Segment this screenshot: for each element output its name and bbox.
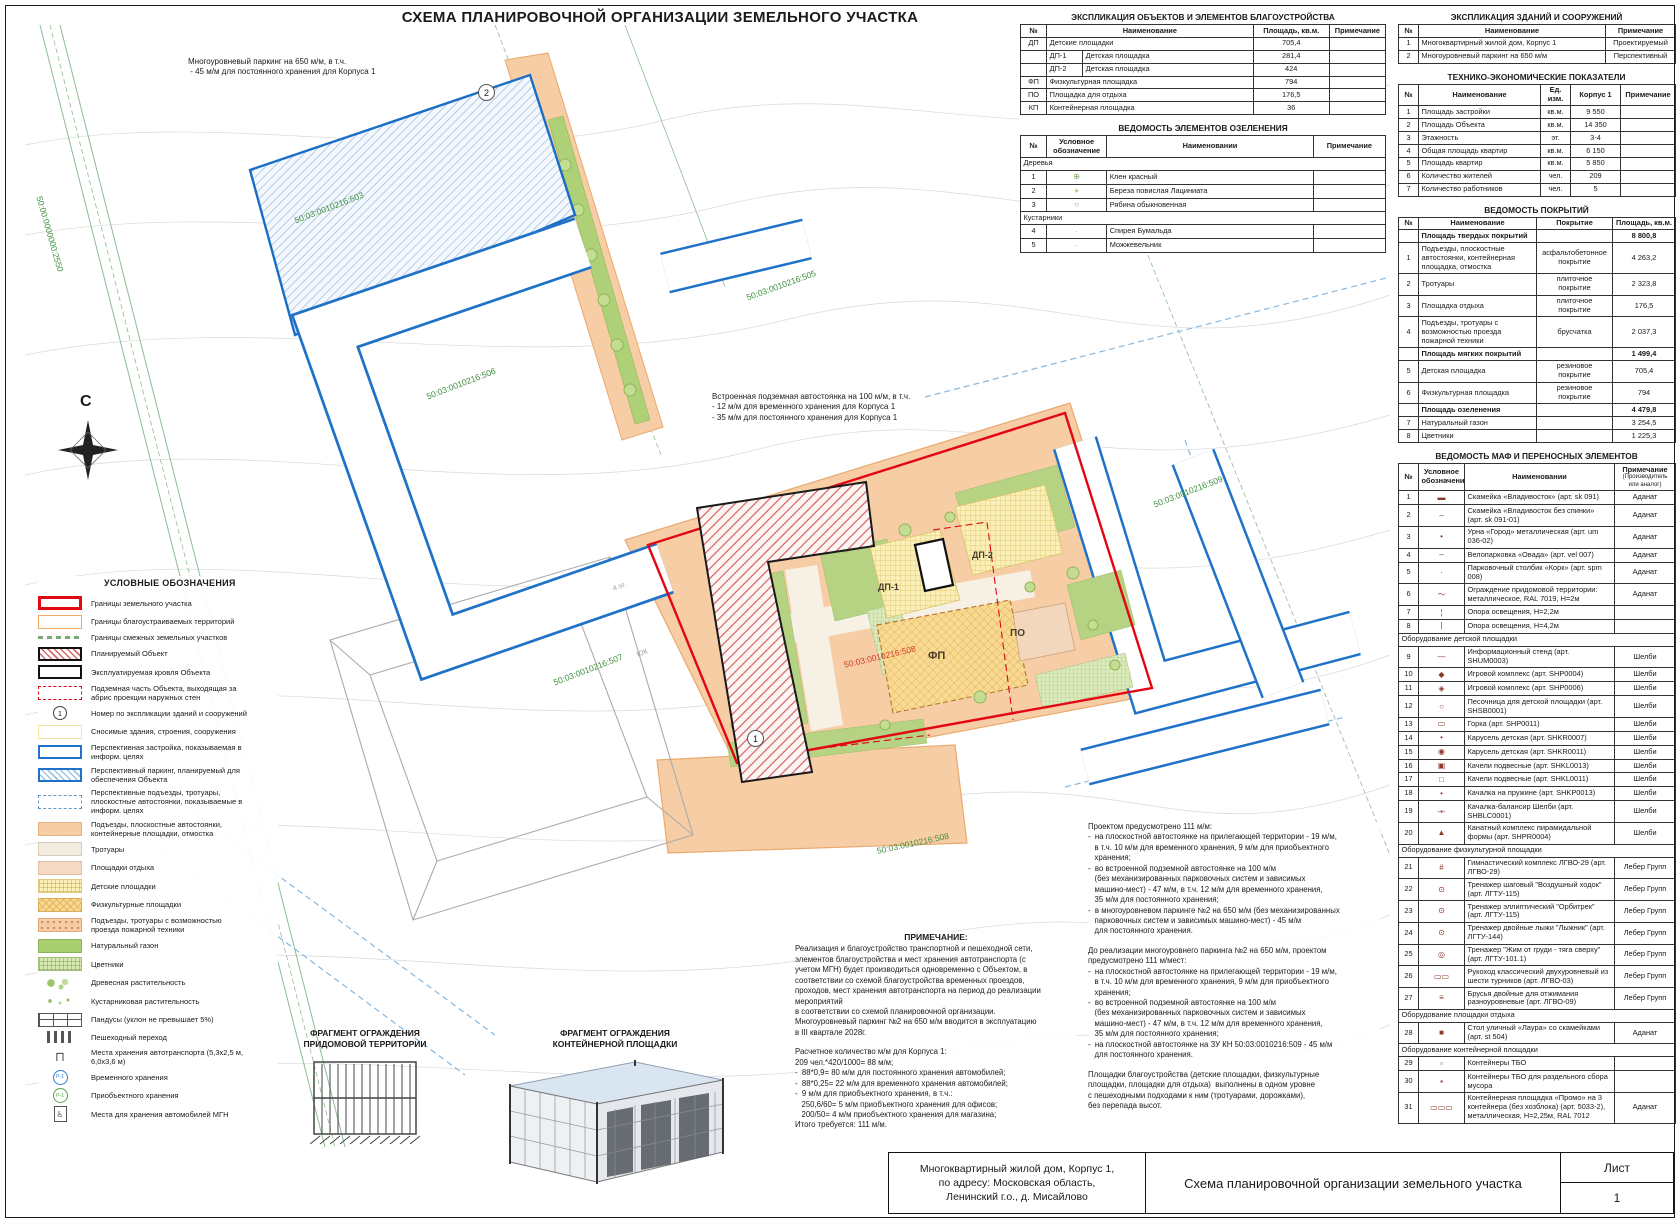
rope-pyramid-icon: ▲ [1438, 828, 1446, 837]
legend-item: 1Номер по экспликации зданий и сооружени… [38, 706, 278, 720]
text-line: Многоуровневый паркинг №2 на 650 м/м вво… [795, 1017, 1077, 1027]
table-row: ПОПлощадка для отдыха176,5 [1021, 89, 1386, 102]
legend-item: Границы земельного участка [38, 596, 278, 610]
legend-item: Пандусы (уклон не превышает 5%) [38, 1013, 278, 1027]
temporary-storage-swatch: Р-1 [38, 1070, 82, 1084]
legend-label: Древесная растительность [91, 978, 251, 987]
text-line: - 88*0,9= 80 м/м для постоянного хранени… [795, 1068, 1077, 1078]
compass-star [58, 420, 118, 480]
table-row: 18•Качалка на пружине (арт. SHKP0013)Шел… [1399, 787, 1676, 801]
press-trainer-icon: ◎ [1438, 950, 1445, 959]
table-row: 2Площадь Объектакв.м.14 350 [1399, 119, 1676, 132]
table-row: 8|Опора освещения, H=4,2м [1399, 619, 1676, 633]
info-stand-icon: — [1438, 652, 1446, 661]
slide-icon: ▭ [1438, 719, 1446, 728]
text-line: (без механизированных парковочных систем… [1088, 1008, 1380, 1018]
legend-item: Цветники [38, 957, 278, 971]
container-fence-caption: ФРАГМЕНТ ОГРАЖДЕНИЯКОНТЕЙНЕРНОЙ ПЛОЩАДКИ [500, 1028, 730, 1051]
legend-item: ♿Места для хранения автомобилей МГН [38, 1107, 278, 1121]
legend-label: Сносимые здания, строения, сооружения [91, 727, 251, 736]
drawing-sheet: СХЕМА ПЛАНИРОВОЧНОЙ ОРГАНИЗАЦИИ ЗЕМЕЛЬНО… [0, 0, 1680, 1223]
table-row: Оборудование детской площадки [1399, 633, 1676, 646]
legend-label: Площадки отдыха [91, 863, 251, 872]
legend-label: Цветники [91, 960, 251, 969]
table-header-row: №НаименованиеПримечание [1399, 25, 1676, 38]
birch-symbol: ● [1074, 186, 1079, 195]
table-row: 5·Можжевельник [1021, 239, 1386, 253]
text-line: - на плоскостной автостоянке на ЗУ КН 50… [1088, 1040, 1380, 1050]
table-header-row: №НаименованиеПлощадь, кв.м.Примечание [1021, 25, 1386, 38]
demolished-buildings-swatch [38, 725, 82, 739]
text-line: в соответствии со схемой планировочной о… [795, 1007, 1077, 1017]
spirea-symbol: · [1075, 227, 1078, 236]
legend-item: Перспективный паркинг, планируемый для о… [38, 766, 278, 784]
container-enclosure-drawing [495, 1056, 730, 1191]
rest-areas-swatch [38, 861, 82, 875]
text-line: 200/50= 4 м/м приобъектного хранения для… [795, 1110, 1077, 1120]
surfaces-table-title: ВЕДОМОСТЬ ПОКРЫТИЙ [1398, 205, 1675, 215]
legend-label: Подъезды, тротуары с возможностью проезд… [91, 916, 251, 934]
legend-item: Перспективная застройка, показываемая в … [38, 743, 278, 761]
table-row: 1Площадь застройкикв.м.9 550 [1399, 106, 1676, 119]
building-1-mark: 1 [747, 730, 764, 747]
notes-paragraph: Реализация и благоустройство транспортно… [795, 944, 1077, 1038]
table-row: 9—Информационный стенд (арт. SHUM0003)Ше… [1399, 646, 1676, 668]
table-row: 3Этажностьэт.3-4 [1399, 132, 1676, 145]
legend-item: Р-1Временного хранения [38, 1070, 278, 1084]
table-row: 6〜Ограждение придомовой территории: мета… [1399, 584, 1676, 606]
text-line: проходов, мест хранения автотранспорта н… [795, 986, 1077, 996]
table-row: 17□Качели подвесные (арт. SHKL0011)Шелби [1399, 773, 1676, 787]
fence-fragment-caption: ФРАГМЕНТ ОГРАЖДЕНИЯПРИДОМОВОЙ ТЕРРИТОРИИ [270, 1028, 460, 1051]
table-row: КПКонтейнерная площадка36 [1021, 102, 1386, 115]
table-row: 21#Гимнастический комплекс ЛГВО-29 (арт.… [1399, 857, 1676, 879]
notes-left: ПРИМЕЧАНИЕ: Реализация и благоустройство… [795, 932, 1077, 1131]
tep-table-title: ТЕХНИКО-ЭКОНОМИЧЕСКИЕ ПОКАЗАТЕЛИ [1398, 72, 1675, 82]
table-row: 3•Урна «Город» металлическая (арт. um 03… [1399, 526, 1676, 548]
sidewalks-swatch [38, 842, 82, 856]
table-row: 30▪Контейнеры ТБО для раздельного сбора … [1399, 1071, 1676, 1093]
monkey-bars-icon: ▭▭ [1434, 972, 1449, 981]
exploited-roof-swatch [38, 665, 82, 679]
table-row: 1⊕Клен красный [1021, 170, 1386, 184]
gym-complex-icon: # [1439, 863, 1443, 872]
text-line: площадки, площадки для отдыха) выполнены… [1088, 1080, 1380, 1090]
text-line: - 35 м/м для постоянного хранения для Ко… [712, 413, 910, 423]
table-row: 12○Песочница для детской площадки (арт. … [1399, 696, 1676, 718]
legend-label: Перспективный паркинг, планируемый для о… [91, 766, 251, 784]
table-row: 27≡Брусья двойные для отжимания разноуро… [1399, 988, 1676, 1010]
table-row: Оборудование контейнерной площадки [1399, 1044, 1676, 1057]
text-line: - 45 м/м для постоянного хранения для Ко… [188, 67, 375, 77]
maple-symbol: ⊕ [1073, 172, 1080, 181]
table-row: Площадь твердых покрытий8 800,8 [1399, 230, 1676, 243]
provided-parking-note: Проектом предусмотрено 111 м/м:- на плос… [1088, 822, 1380, 937]
table-row: 5Детская площадкарезиновое покрытие705,4 [1399, 360, 1676, 382]
table-row: 1Многоквартирный жилой дом, Корпус 1Прое… [1399, 37, 1676, 50]
perspective-buildings-swatch [38, 745, 82, 759]
playground-1-label: ДП-1 [878, 582, 899, 592]
objects-table: №НаименованиеПлощадь, кв.м.ПримечаниеДПД… [1020, 24, 1386, 115]
spring-rocker-icon: • [1440, 789, 1443, 798]
table-row: 7Натуральный газон3 254,5 [1399, 417, 1676, 430]
text-line: 35 м/м для постоянного хранения; [1088, 1029, 1380, 1039]
legend-label: Подземная часть Объекта, выходящая за аб… [91, 684, 251, 702]
legend-label: Тротуары [91, 845, 251, 854]
light-pole-icon: ¦ [1440, 608, 1442, 617]
text-line: с пешеходными подходами к ним (тротуарам… [1088, 1091, 1380, 1101]
text-line: 209 чел.*420/1000= 88 м/м; [795, 1058, 1077, 1068]
perspective-building-2 [665, 239, 807, 273]
interim-parking-note: До реализации многоуровнего паркинга №2 … [1088, 946, 1380, 1061]
text-line: ФРАГМЕНТ ОГРАЖДЕНИЯ [270, 1028, 460, 1039]
legend-label: Границы смежных земельных участков [91, 633, 251, 642]
legend-label: Места для хранения автомобилей МГН [91, 1110, 251, 1119]
maf-table: №Условное обозначениеНаименованииПримеча… [1398, 463, 1676, 1124]
near-object-storage-swatch: Р-1 [38, 1089, 82, 1103]
text-line: КОНТЕЙНЕРНОЙ ПЛОЩАДКИ [500, 1039, 730, 1050]
table-row: 11◈Игровой комплекс (арт. SHP0006)Шелби [1399, 682, 1676, 696]
building-2-mark: 2 [478, 84, 495, 101]
text-line: учетом МГН) будет производиться одноврем… [795, 965, 1077, 975]
text-line: в т.ч. 10 м/м для временного хранения, 9… [1088, 977, 1380, 987]
table-row: 2–Скамейка «Владивосток без спинки» (арт… [1399, 505, 1676, 527]
maf-table-title: ВЕДОМОСТЬ МАФ И ПЕРЕНОСНЫХ ЭЛЕМЕНТОВ [1398, 451, 1675, 461]
tables-column-right: ЭКСПЛИКАЦИЯ ЗДАНИЙ И СООРУЖЕНИЙ №Наимено… [1398, 12, 1675, 1124]
table-row: 4Подъезды, тротуары с возможностью проез… [1399, 317, 1676, 348]
ski-trainer-icon: ⊙ [1438, 928, 1445, 937]
play-complex-icon: ◆ [1438, 670, 1444, 679]
container-site-icon: ▭▭▭ [1430, 1103, 1453, 1112]
sheet-number: 1 [1561, 1183, 1673, 1213]
tall-light-pole-icon: | [1440, 621, 1442, 630]
legend-heading: УСЛОВНЫЕ ОБОЗНАЧЕНИЯ [104, 578, 278, 588]
table-row: 4–Велопарковка «Овада» (арт. vel 007)Ада… [1399, 548, 1676, 562]
table-row: 7Количество работниковчел.5 [1399, 183, 1676, 196]
table-header-row: №Условное обозначениеНаименованииПримеча… [1021, 136, 1386, 158]
table-row: 15◉Карусель детская (арт. SHKR0011)Шелби [1399, 745, 1676, 759]
text-line: - на плоскостной автостоянке на прилегаю… [1088, 832, 1380, 842]
legend-item: Эксплуатируемая кровля Объекта [38, 665, 278, 679]
table-row: 28■Стол уличный «Лаура» со скамейками (а… [1399, 1022, 1676, 1044]
surfaces-table: №НаименованиеПокрытиеПлощадь, кв.м.Площа… [1398, 217, 1676, 444]
table-row: 20▲Канатный комплекс пирамидальной формы… [1399, 822, 1676, 844]
legend-label: Перспективные подъезды, тротуары, плоско… [91, 788, 251, 815]
stepper-icon: ⊙ [1438, 885, 1445, 894]
play-complex-icon: ◈ [1438, 684, 1444, 693]
table-row: 5·Парковочный столбик «Корк» (арт. spm 0… [1399, 562, 1676, 584]
legend-label: Перспективная застройка, показываемая в … [91, 743, 251, 761]
greening-table: №Условное обозначениеНаименованииПримеча… [1020, 135, 1386, 253]
buildings-table-title: ЭКСПЛИКАЦИЯ ЗДАНИЙ И СООРУЖЕНИЙ [1398, 12, 1675, 22]
recycling-container-icon: ▪ [1440, 1077, 1443, 1086]
bench-icon: ▬ [1438, 493, 1446, 502]
perspective-building-5 [1085, 707, 1325, 767]
legend-label: Временного хранения [91, 1073, 251, 1082]
sport-grounds-swatch [38, 898, 82, 912]
sheet-label: Лист [1561, 1153, 1673, 1183]
project-name: Многоквартирный жилой дом, Корпус 1, по … [889, 1153, 1146, 1213]
table-row: Площадь мягких покрытий1 499,4 [1399, 348, 1676, 361]
legend-item: Пешеходный переход [38, 1031, 278, 1043]
sandbox-icon: ○ [1439, 702, 1444, 711]
text-line: 250,6/60= 5 м/м приобъектного хранения д… [795, 1100, 1077, 1110]
text-line: без перепада высот. [1088, 1101, 1380, 1111]
text-line: в III квартале 2028г. [795, 1028, 1077, 1038]
parking-calculation: Расчетное количество м/м для Корпуса 1:2… [795, 1047, 1077, 1131]
text-line: - 9 м/м для приобъектного хранения, в т.… [795, 1089, 1077, 1099]
sheet-number-block: Лист 1 [1561, 1153, 1673, 1213]
carousel-icon: • [1440, 733, 1443, 742]
legend-label: Детские площадки [91, 882, 251, 891]
waste-container-icon: ▫ [1440, 1059, 1443, 1068]
text-line: для постоянного хранения. [1088, 1050, 1380, 1060]
legend-label: Эксплуатируемая кровля Объекта [91, 668, 251, 677]
text-line: - в многоуровневом паркинге №2 на 650 м/… [1088, 906, 1380, 916]
objects-table-title: ЭКСПЛИКАЦИЯ ОБЪЕКТОВ И ЭЛЕМЕНТОВ БЛАГОУС… [1020, 12, 1386, 22]
table-row: Кустарники [1021, 212, 1386, 225]
seesaw-icon: -▪- [1437, 807, 1445, 816]
parallel-bars-icon: ≡ [1439, 993, 1444, 1002]
natural-lawn-swatch [38, 939, 82, 953]
table-row: 14•Карусель детская (арт. SHKR0007)Шелби [1399, 731, 1676, 745]
flowerbeds-swatch [38, 957, 82, 971]
table-row: Деревья [1021, 157, 1386, 170]
table-row: 3Площадка отдыхаплиточное покрытие176,5 [1399, 295, 1676, 317]
table-row: 5Площадь квартиркв.м.5 850 [1399, 157, 1676, 170]
legend-item: Планируемый Объект [38, 647, 278, 661]
legend-label: Планируемый Объект [91, 649, 251, 658]
mgn-parking-swatch: ♿ [38, 1107, 82, 1121]
territory-fence-drawing [310, 1058, 420, 1148]
table-row: 6Физкультурная площадкарезиновое покрыти… [1399, 382, 1676, 404]
legend-item: Подъезды, тротуары с возможностью проезд… [38, 916, 278, 934]
shrubs-swatch [38, 994, 82, 1008]
ramps-swatch [38, 1013, 82, 1027]
text-line: (без механизированных парковочных систем… [1088, 874, 1380, 884]
buildings-table: №НаименованиеПримечание1Многоквартирный … [1398, 24, 1676, 64]
table-row: 25◎Тренажер "Жим от груди - тяга сверху"… [1399, 944, 1676, 966]
text-line: Встроенная подземная автостоянка на 100 … [712, 392, 910, 402]
table-header-row: №НаименованиеПокрытиеПлощадь, кв.м. [1399, 217, 1676, 230]
legend-item: Детские площадки [38, 879, 278, 893]
trees-swatch [38, 976, 82, 990]
text-line: Проектом предусмотрено 111 м/м: [1088, 822, 1380, 832]
legend-label: Пандусы (уклон не превышает 5%) [91, 1015, 251, 1024]
juniper-symbol: · [1075, 241, 1078, 250]
level-note: Площадки благоустройства (детские площад… [1088, 1070, 1380, 1112]
table-row: 19-▪-Качалка-балансир Шелби (арт. SHBLC0… [1399, 801, 1676, 823]
table-row: 2Многоуровневый паркинг на 650 м/мПерспе… [1399, 50, 1676, 63]
text-line: мероприятий [795, 997, 1077, 1007]
explication-number-swatch: 1 [38, 706, 82, 720]
site-boundary-swatch [38, 596, 82, 610]
text-line: Реализация и благоустройство транспортно… [795, 944, 1077, 954]
legend-item: Тротуары [38, 842, 278, 856]
text-line: Расчетное количество м/м для Корпуса 1: [795, 1047, 1077, 1057]
drawing-name: Схема планировочной организации земельно… [1146, 1153, 1561, 1213]
playgrounds-swatch [38, 879, 82, 893]
text-line: хранения; [1088, 988, 1380, 998]
legend-label: Места хранения автотранспорта (5,3х2,5 м… [91, 1048, 251, 1066]
tep-table: №НаименованиеЕд. изм.Корпус 1Примечание1… [1398, 84, 1676, 197]
legend: УСЛОВНЫЕ ОБОЗНАЧЕНИЯ Границы земельного … [38, 576, 278, 1128]
legend-label: Приобъектного хранения [91, 1091, 251, 1100]
text-line: парковочных систем и зависимых машино-ме… [1088, 916, 1380, 926]
parking-annotation: Многоуровневый паркинг на 650 м/м, в т.ч… [188, 57, 375, 78]
notes-heading: ПРИМЕЧАНИЕ: [795, 932, 1077, 943]
text-line: хранения; [1088, 853, 1380, 863]
legend-label: Натуральный газон [91, 941, 251, 950]
swing-icon: □ [1439, 775, 1444, 784]
legend-label: Номер по экспликации зданий и сооружений [91, 709, 251, 718]
table-row: 3○Рябина обыкновенная [1021, 198, 1386, 212]
text-line: Многоуровневый паркинг на 650 м/м, в т.ч… [188, 57, 375, 67]
table-row: 16▣Качели подвесные (арт. SHKL0013)Шелби [1399, 759, 1676, 773]
text-line: - 12 м/м для временного хранения для Кор… [712, 402, 910, 412]
bollard-icon: · [1440, 568, 1443, 577]
text-line: соответствии со схемой благоустройства в… [795, 976, 1077, 986]
crosswalk-swatch [47, 1031, 73, 1043]
legend-item: Р-1Приобъектного хранения [38, 1089, 278, 1103]
legend-item: Границы смежных земельных участков [38, 633, 278, 642]
legend-item: Кустарниковая растительность [38, 994, 278, 1008]
underground-part-swatch [38, 686, 82, 700]
legend-label: Кустарниковая растительность [91, 997, 251, 1006]
legend-label: Подъезды, плоскостные автостоянки, конте… [91, 820, 251, 838]
legend-item: Подъезды, плоскостные автостоянки, конте… [38, 820, 278, 838]
underground-annotation: Встроенная подземная автостоянка на 100 … [712, 392, 910, 423]
legend-label: Границы благоустраиваемых территорий [91, 617, 251, 626]
street-table-icon: ■ [1439, 1028, 1444, 1037]
text-line: машино-мест) - 47 м/м, в т.ч. 12 м/м для… [1088, 1019, 1380, 1029]
table-row: Оборудование физкультурной площадки [1399, 844, 1676, 857]
title-block: Многоквартирный жилой дом, Корпус 1, по … [888, 1152, 1674, 1214]
table-row: 8Цветники1 225,3 [1399, 430, 1676, 443]
car-storage-swatch: ⊓ [38, 1050, 82, 1064]
text-line: - на плоскостной автостоянке на прилегаю… [1088, 967, 1380, 977]
table-header-row: №Условное обозначениеНаименованииПримеча… [1399, 464, 1676, 491]
planned-object-swatch [38, 647, 82, 661]
legend-item: Физкультурные площадки [38, 898, 278, 912]
text-line: 35 м/м для постоянного хранения; [1088, 895, 1380, 905]
sport-ground-label: ФП [928, 650, 945, 662]
table-row: 13▭Горка (арт. SHP0011)Шелби [1399, 717, 1676, 731]
legend-label: Границы земельного участка [91, 599, 251, 608]
legend-item: ⊓Места хранения автотранспорта (5,3х2,5 … [38, 1048, 278, 1066]
table-row: 6Количество жителейчел.209 [1399, 170, 1676, 183]
table-header-row: №НаименованиеЕд. изм.Корпус 1Примечание [1399, 84, 1676, 106]
text-line: ПРИДОМОВОЙ ТЕРРИТОРИИ [270, 1039, 460, 1050]
legend-label: Физкультурные площадки [91, 900, 251, 909]
table-row: ДПДетские площадки705,4 [1021, 37, 1386, 50]
text-line: для постоянного хранения. [1088, 926, 1380, 936]
text-line: До реализации многоуровнего паркинга №2 … [1088, 946, 1380, 956]
legend-label: Пешеходный переход [91, 1033, 251, 1042]
greening-table-title: ВЕДОМОСТЬ ЭЛЕМЕНТОВ ОЗЕЛЕНЕНИЯ [1020, 123, 1386, 133]
legend-item: Древесная растительность [38, 976, 278, 990]
drawing-title: СХЕМА ПЛАНИРОВОЧНОЙ ОРГАНИЗАЦИИ ЗЕМЕЛЬНО… [330, 9, 990, 26]
text-line: в т.ч. 10 м/м для временного хранения, 9… [1088, 843, 1380, 853]
adjacent-parcels-swatch [38, 636, 82, 639]
drives-parking-swatch [38, 822, 82, 836]
legend-item: Подземная часть Объекта, выходящая за аб… [38, 684, 278, 702]
legend-item: Натуральный газон [38, 939, 278, 953]
table-row: 1▬Скамейка «Владивосток» (арт. sk 091)Ад… [1399, 491, 1676, 505]
north-label: С [80, 393, 92, 411]
text-line: Итого требуется: 111 м/м. [795, 1120, 1077, 1130]
text-line: - 88*0,25= 22 м/м для временного хранени… [795, 1079, 1077, 1089]
table-row: 24⊙Тренажер двойные лыжи "Лыжник" (арт. … [1399, 922, 1676, 944]
text-line: машино-мест) - 47 м/м, в т.ч. 12 м/м для… [1088, 885, 1380, 895]
table-row: 2Тротуарыплиточное покрытие2 323,8 [1399, 273, 1676, 295]
table-row: 7¦Опора освещения, H=2,2м [1399, 606, 1676, 620]
text-line: предусмотрено 111 м/мест: [1088, 956, 1380, 966]
table-row: 4·Спирея Бумальда [1021, 225, 1386, 239]
rowan-symbol: ○ [1074, 200, 1079, 209]
legend-item: Площадки отдыха [38, 861, 278, 875]
legend-items: Границы земельного участкаГраницы благоу… [38, 596, 278, 1121]
tables-column-left: ЭКСПЛИКАЦИЯ ОБЪЕКТОВ И ЭЛЕМЕНТОВ БЛАГОУС… [1020, 12, 1386, 253]
table-row: 29▫Контейнеры ТБО [1399, 1057, 1676, 1071]
bike-parking-icon: – [1439, 550, 1443, 559]
table-row: ДП-2Детская площадка424 [1021, 63, 1386, 76]
table-row: 31▭▭▭Контейнерная площадка «Промо» на 3 … [1399, 1092, 1676, 1123]
text-line: ФРАГМЕНТ ОГРАЖДЕНИЯ [500, 1028, 730, 1039]
table-row: Площадь озеленения4 479,8 [1399, 404, 1676, 417]
notes-right: Проектом предусмотрено 111 м/м:- на плос… [1088, 822, 1380, 1111]
text-line: Площадки благоустройства (детские площад… [1088, 1070, 1380, 1080]
text-line: - во встроенной подземной автостоянке на… [1088, 998, 1380, 1008]
legend-item: Перспективные подъезды, тротуары, плоско… [38, 788, 278, 815]
table-row: 1Подъезды, плоскостные автостоянки, конт… [1399, 243, 1676, 274]
table-row: Оборудование площадки отдыха [1399, 1009, 1676, 1022]
urn-icon: • [1440, 532, 1443, 541]
carousel-icon: ◉ [1438, 747, 1445, 756]
playground-2-label: ДП-2 [972, 550, 993, 560]
legend-item: Сносимые здания, строения, сооружения [38, 725, 278, 739]
table-row: 23⊙Тренажер эллиптический "Орбитрек" (ар… [1399, 901, 1676, 923]
perspective-drives-swatch [38, 795, 82, 809]
improvement-boundary-swatch [38, 615, 82, 629]
table-row: ФПФизкультурная площадка794 [1021, 76, 1386, 89]
table-row: 4Общая площадь квартиркв.м.6 150 [1399, 145, 1676, 158]
table-row: 10◆Игровой комплекс (арт. SHP0004)Шелби [1399, 668, 1676, 682]
text-line: элементов благоустройства и мест хранени… [795, 955, 1077, 965]
fence-icon: 〜 [1438, 590, 1446, 599]
table-row: 22⊙Тренажер шаговый "Воздушный ходок" (а… [1399, 879, 1676, 901]
perspective-parking-swatch [38, 768, 82, 782]
table-row: 26▭▭Рукоход классический двухуровневый и… [1399, 966, 1676, 988]
swing-icon: ▣ [1438, 761, 1446, 770]
text-line: - во встроенной подземной автостоянке на… [1088, 864, 1380, 874]
table-row: ДП-1Детская площадка281,4 [1021, 50, 1386, 63]
table-row: 2●Береза повислая Лациниата [1021, 184, 1386, 198]
backless-bench-icon: – [1439, 511, 1443, 520]
rest-area-label: ПО [1010, 628, 1025, 639]
elliptical-icon: ⊙ [1438, 906, 1445, 915]
fire-lane-swatch [38, 918, 82, 932]
legend-item: Границы благоустраиваемых территорий [38, 615, 278, 629]
